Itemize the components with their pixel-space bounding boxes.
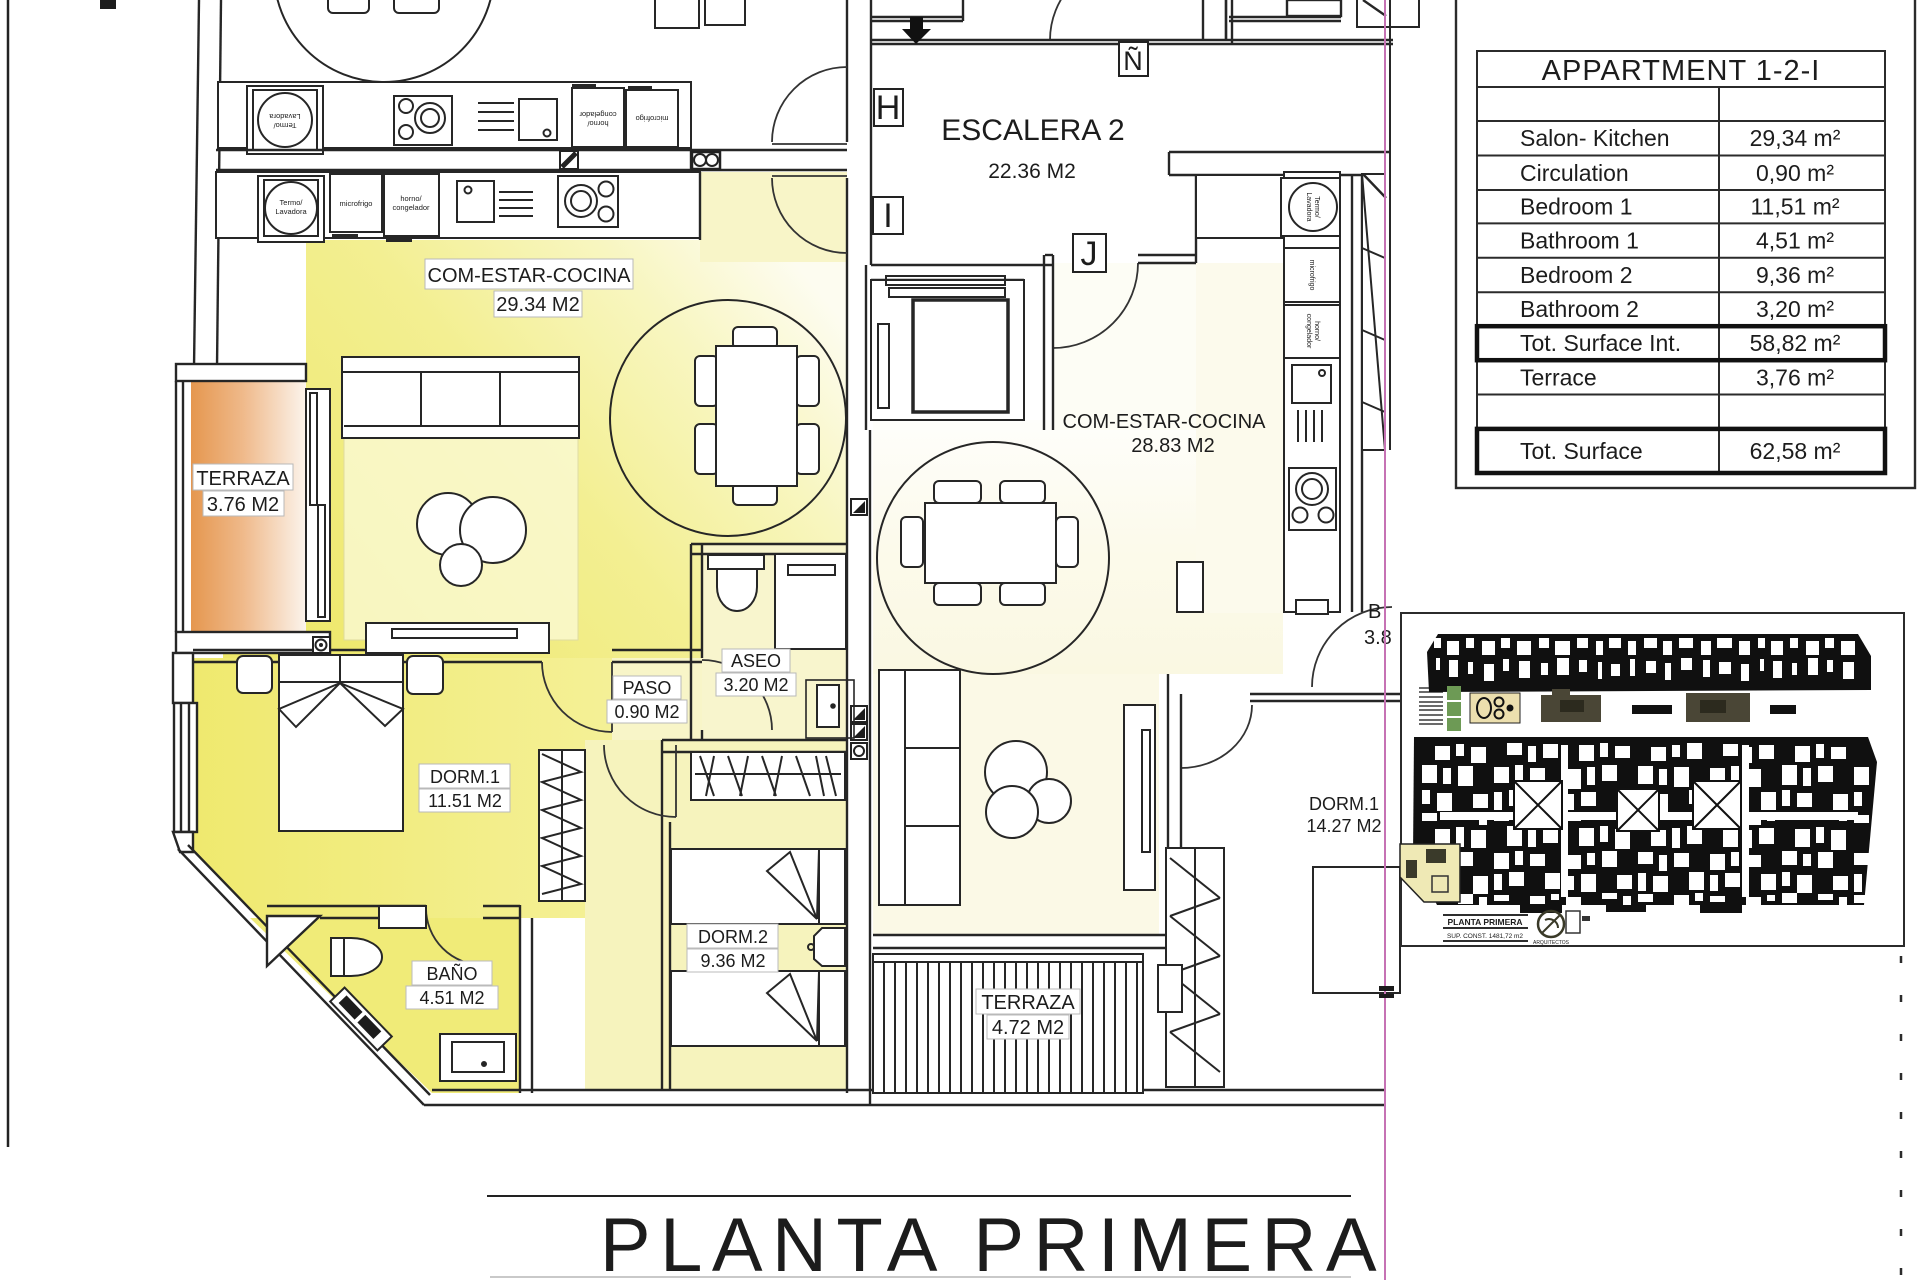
svg-text:Termo/: Termo/	[273, 121, 297, 130]
svg-text:BAÑO: BAÑO	[426, 963, 477, 984]
svg-text:microfrigo: microfrigo	[340, 199, 373, 208]
svg-text:0.90 M2: 0.90 M2	[614, 702, 679, 722]
svg-text:microfrigo: microfrigo	[1308, 260, 1315, 291]
svg-text:4,51 m²: 4,51 m²	[1756, 228, 1834, 254]
svg-text:ARQUITECTOS: ARQUITECTOS	[1533, 940, 1570, 946]
svg-text:3.76 M2: 3.76 M2	[207, 494, 279, 516]
svg-text:9.36 M2: 9.36 M2	[700, 951, 765, 971]
svg-text:TERRAZA: TERRAZA	[196, 468, 290, 490]
svg-text:29,34 m²: 29,34 m²	[1750, 125, 1841, 151]
svg-text:TERRAZA: TERRAZA	[981, 992, 1075, 1014]
svg-text:microfrigo: microfrigo	[636, 114, 669, 123]
svg-text:COM-ESTAR-COCINA: COM-ESTAR-COCINA	[1063, 411, 1267, 433]
svg-text:29.34 M2: 29.34 M2	[496, 294, 579, 316]
svg-text:Lavadora: Lavadora	[1305, 192, 1312, 221]
svg-text:J: J	[1081, 235, 1098, 273]
svg-text:horno/: horno/	[1313, 321, 1320, 341]
svg-text:Bedroom 2: Bedroom 2	[1520, 262, 1633, 288]
svg-text:APPARTMENT 1-2-I: APPARTMENT 1-2-I	[1542, 55, 1821, 87]
svg-text:11,51 m²: 11,51 m²	[1750, 194, 1839, 220]
svg-text:I: I	[883, 197, 892, 235]
svg-text:Lavadora: Lavadora	[269, 112, 301, 121]
svg-text:Bathroom 2: Bathroom 2	[1520, 296, 1639, 322]
svg-text:Termo/: Termo/	[280, 198, 304, 207]
svg-text:11.51 M2: 11.51 M2	[428, 791, 502, 811]
svg-text:Lavadora: Lavadora	[275, 207, 307, 216]
svg-text:ESCALERA 2: ESCALERA 2	[941, 114, 1124, 147]
svg-text:COM-ESTAR-COCINA: COM-ESTAR-COCINA	[428, 265, 632, 287]
svg-text:Termo/: Termo/	[1313, 196, 1320, 217]
svg-text:ASEO: ASEO	[731, 651, 781, 671]
svg-text:SUP. CONST. 1481,72 m2: SUP. CONST. 1481,72 m2	[1447, 933, 1523, 940]
svg-text:0,90 m²: 0,90 m²	[1756, 160, 1834, 186]
svg-text:Tot. Surface: Tot. Surface	[1520, 438, 1643, 464]
svg-text:DORM.2: DORM.2	[698, 927, 768, 947]
svg-text:horno/: horno/	[586, 119, 608, 128]
svg-text:congelador: congelador	[579, 110, 617, 119]
svg-text:22.36 M2: 22.36 M2	[988, 160, 1076, 183]
svg-text:congelador: congelador	[392, 203, 430, 212]
svg-text:Bedroom 1: Bedroom 1	[1520, 194, 1633, 220]
svg-text:H: H	[876, 89, 901, 127]
svg-text:Salon- Kitchen: Salon- Kitchen	[1520, 125, 1670, 151]
svg-text:4.51 M2: 4.51 M2	[419, 988, 484, 1008]
svg-text:DORM.1: DORM.1	[430, 767, 500, 787]
svg-text:horno/: horno/	[400, 194, 422, 203]
svg-text:14.27 M2: 14.27 M2	[1306, 816, 1381, 836]
svg-text:PLANTA PRIMERA: PLANTA PRIMERA	[1447, 917, 1522, 927]
svg-text:Circulation: Circulation	[1520, 160, 1629, 186]
svg-text:Ñ: Ñ	[1123, 45, 1143, 76]
svg-text:DORM.1: DORM.1	[1309, 794, 1379, 814]
svg-text:3.20 M2: 3.20 M2	[723, 675, 788, 695]
svg-text:3,20 m²: 3,20 m²	[1756, 296, 1834, 322]
svg-text:62,58 m²: 62,58 m²	[1750, 438, 1841, 464]
svg-text:3.8: 3.8	[1364, 627, 1392, 649]
svg-text:PLANTA PRIMERA: PLANTA PRIMERA	[600, 1203, 1386, 1280]
svg-text:4.72 M2: 4.72 M2	[992, 1017, 1064, 1039]
svg-text:3,76 m²: 3,76 m²	[1756, 364, 1834, 390]
svg-text:Bathroom 1: Bathroom 1	[1520, 228, 1639, 254]
svg-text:Terrace: Terrace	[1520, 364, 1597, 390]
svg-text:PASO: PASO	[623, 678, 672, 698]
svg-text:B: B	[1368, 601, 1381, 623]
svg-text:28.83 M2: 28.83 M2	[1131, 435, 1214, 457]
svg-text:9,36 m²: 9,36 m²	[1756, 262, 1834, 288]
svg-text:congelador: congelador	[1305, 314, 1312, 349]
svg-text:58,82 m²: 58,82 m²	[1750, 330, 1841, 356]
svg-text:Tot. Surface Int.: Tot. Surface Int.	[1520, 330, 1681, 356]
